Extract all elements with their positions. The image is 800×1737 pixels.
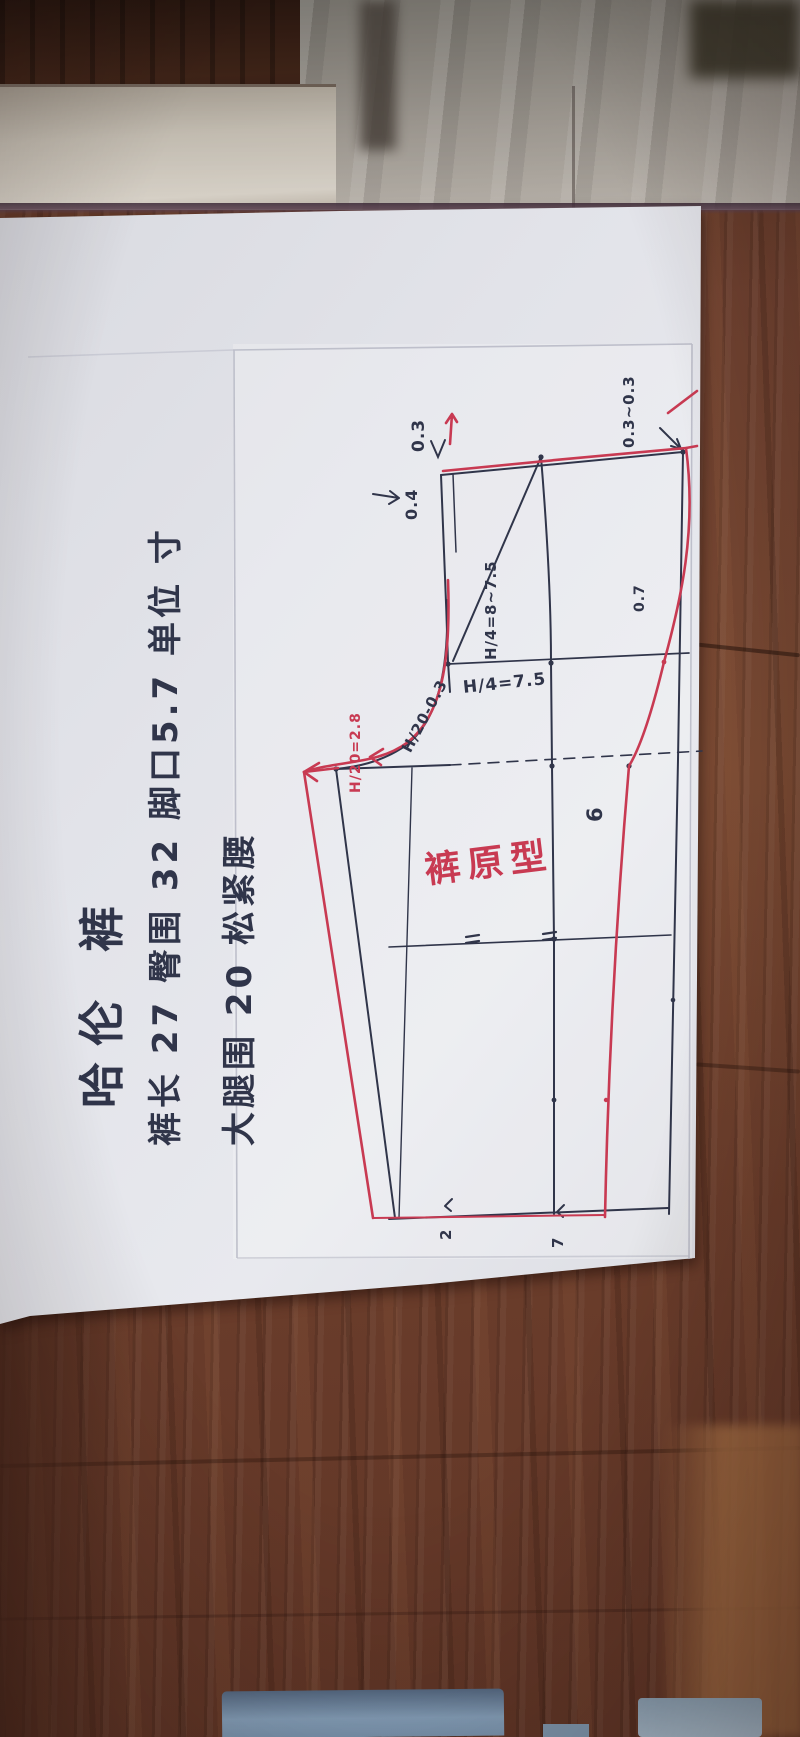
annotation-hip-quarter-range: H/4=8~7.5 xyxy=(482,560,500,660)
black-construction-lines xyxy=(336,428,702,1219)
annotation-waist-side-raise: 0.3~0.3 xyxy=(620,375,638,448)
red-dots xyxy=(604,660,667,1103)
annotation-leg-measure: 6 xyxy=(583,806,607,822)
annotation-hem-right: 7 xyxy=(549,1237,567,1248)
note-specs-line2: 大腿围 20 松紧腰 xyxy=(212,831,261,1146)
note-title: 哈伦 裤 xyxy=(66,890,132,1108)
note-specs-line1: 裤长 27 臀围 32 脚口5.7 单位 寸 xyxy=(138,526,187,1146)
annotation-waist-front-offset: 0.4 xyxy=(402,489,421,520)
blue-object-small xyxy=(638,1698,762,1737)
pants-pattern-drawing xyxy=(0,0,800,1737)
blue-object-tiny xyxy=(543,1724,589,1737)
annotation-hem-left: 2 xyxy=(437,1229,455,1240)
construction-dots xyxy=(333,449,685,1102)
annotation-back-crotch-width: H/20=2.8 xyxy=(348,712,364,793)
annotation-side-seam-ease: 0.7 xyxy=(632,584,648,612)
annotation-waist-front-drop: 0.3 xyxy=(409,419,429,452)
photo-scene: 哈伦 裤 裤长 27 臀围 32 脚口5.7 单位 寸 大腿围 20 松紧腰 裤… xyxy=(0,0,800,1737)
sheet-border xyxy=(28,344,692,1259)
red-outline-lines xyxy=(304,391,697,1218)
blue-object xyxy=(222,1689,504,1737)
